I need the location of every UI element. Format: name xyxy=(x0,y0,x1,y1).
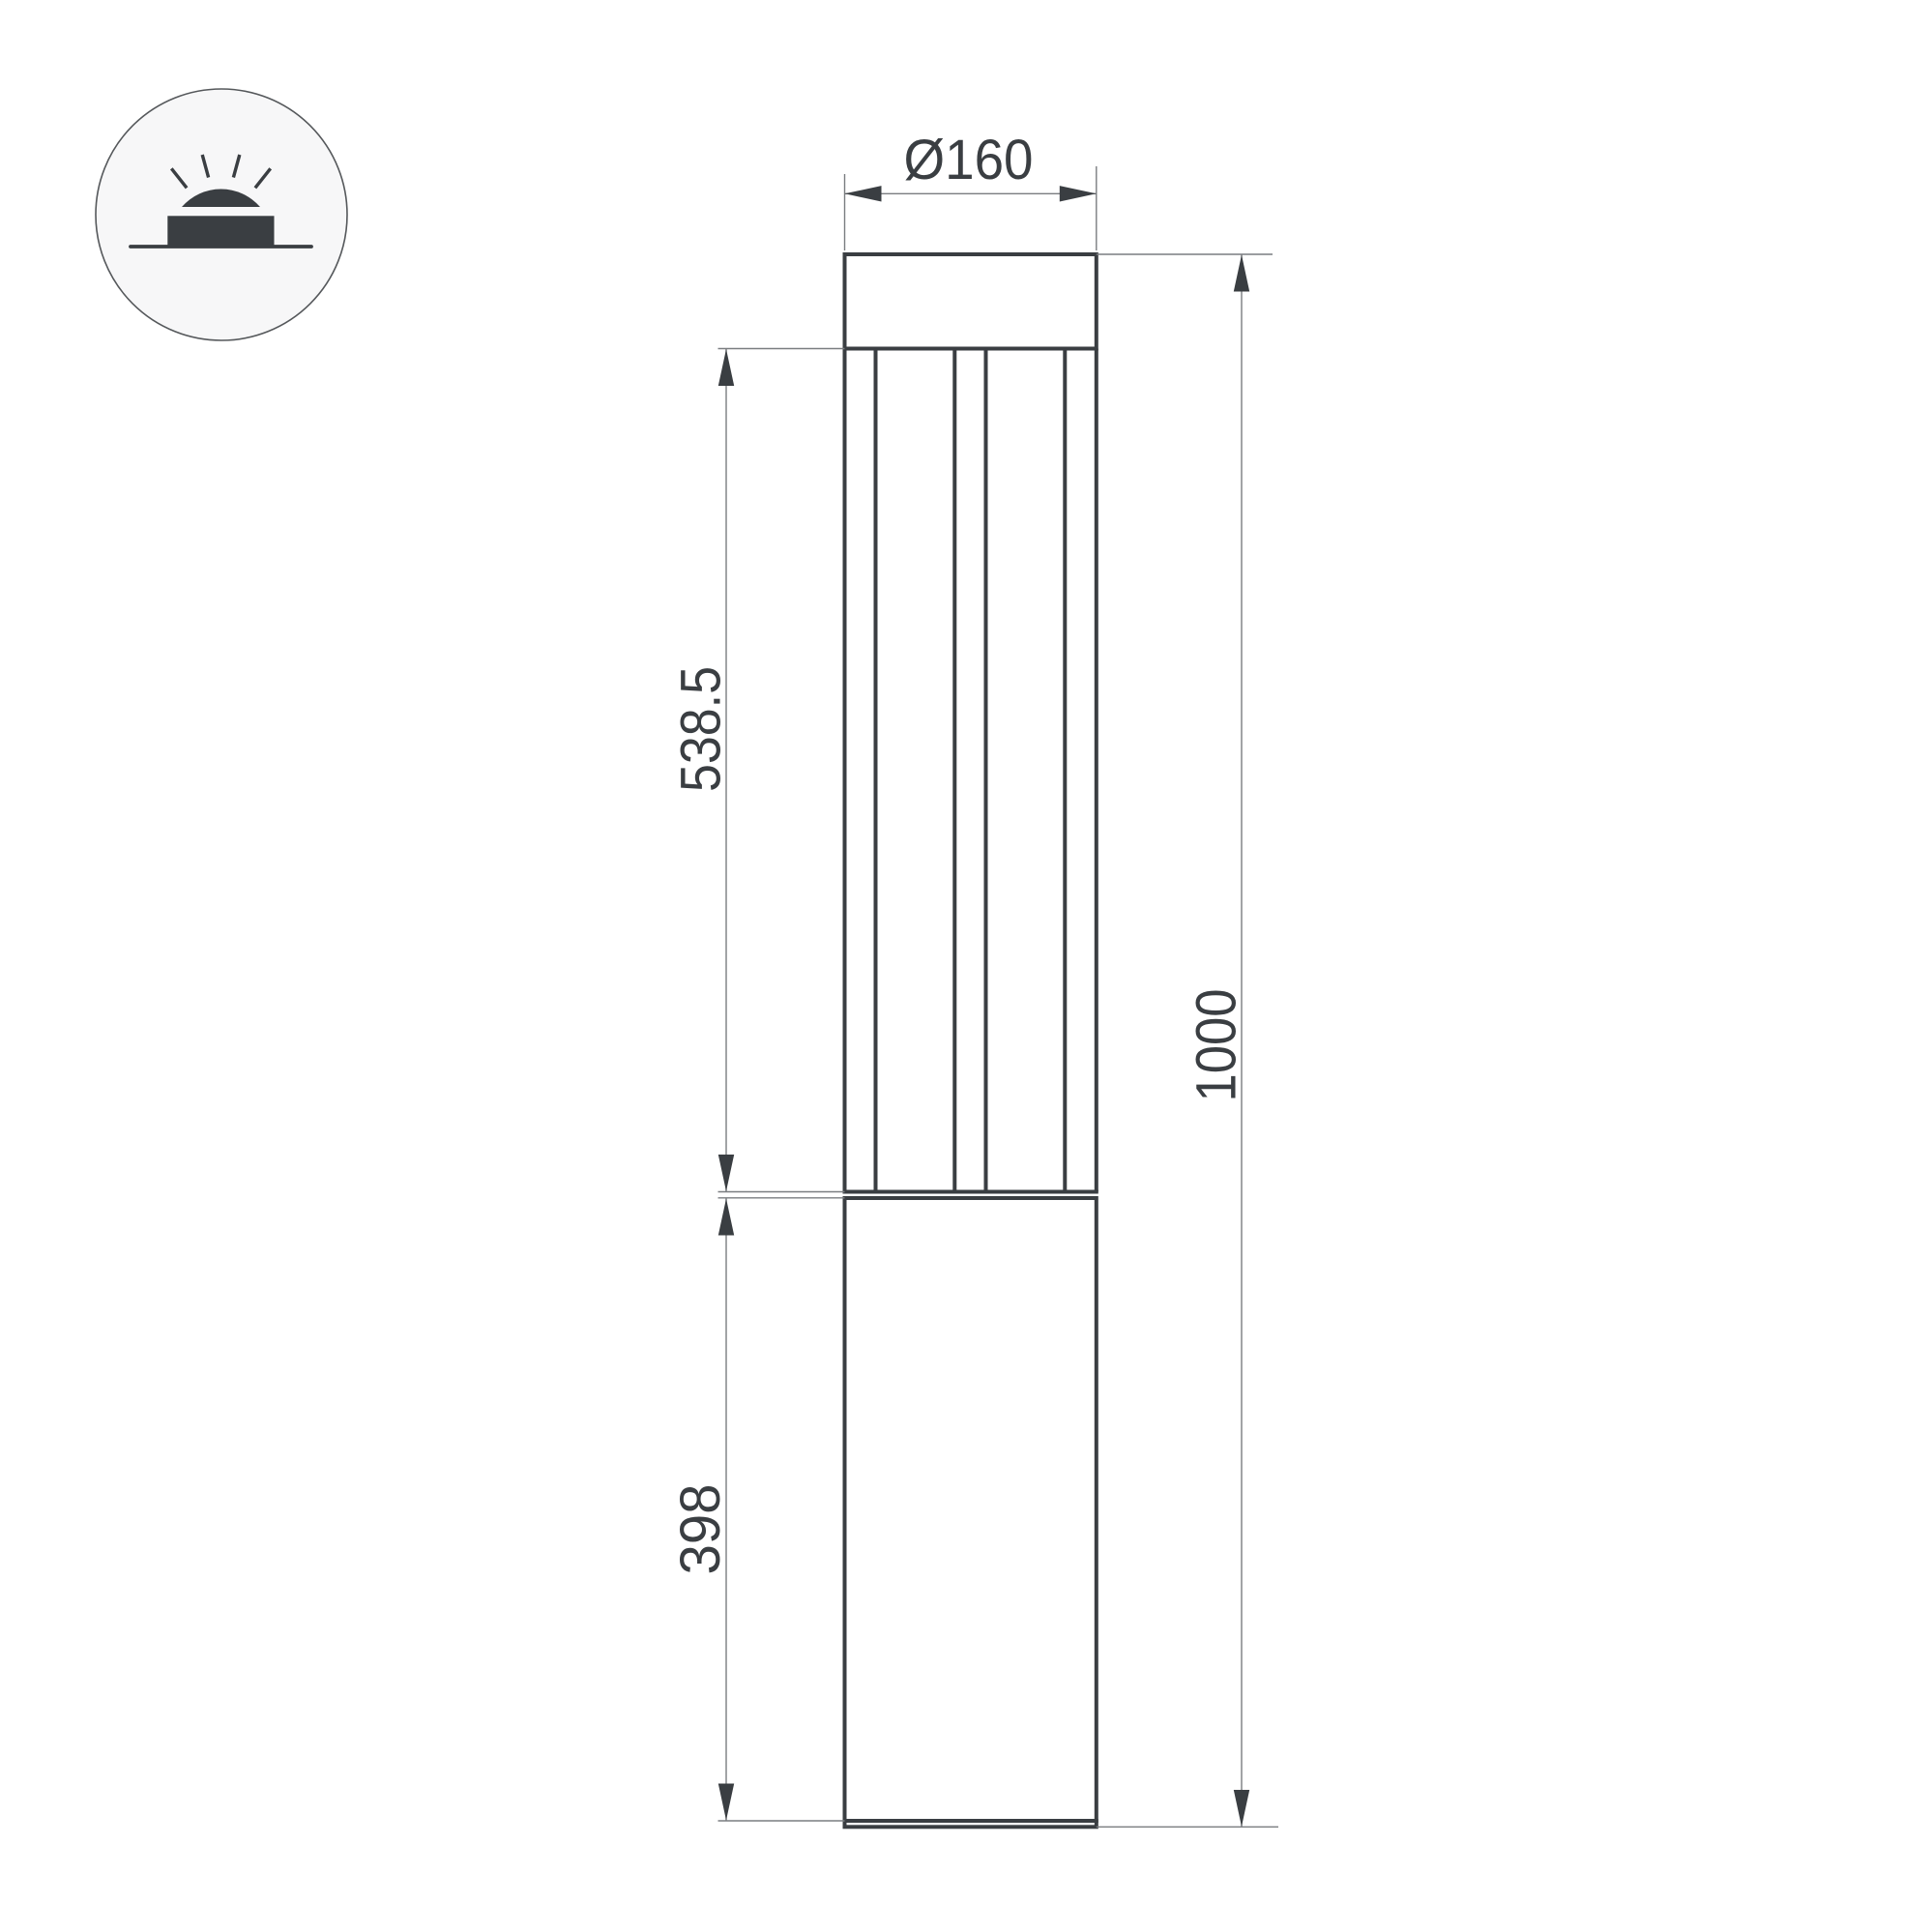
svg-text:Ø160: Ø160 xyxy=(904,129,1034,191)
svg-text:398: 398 xyxy=(669,1484,732,1575)
svg-text:538.5: 538.5 xyxy=(670,666,733,792)
svg-text:1000: 1000 xyxy=(1186,989,1248,1102)
